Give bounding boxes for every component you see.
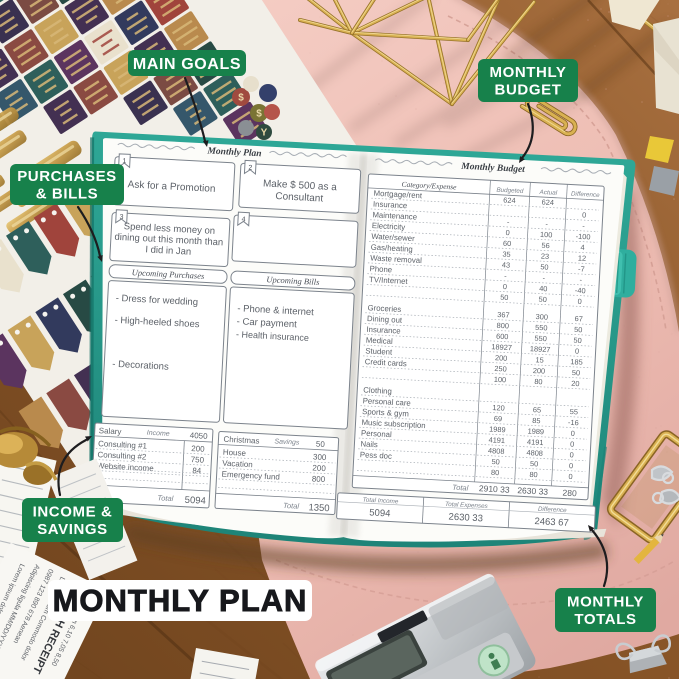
svg-text:200: 200: [533, 366, 546, 376]
svg-text:50: 50: [573, 336, 582, 345]
svg-text:4050: 4050: [190, 431, 209, 441]
svg-text:50: 50: [538, 295, 547, 304]
svg-text:1989: 1989: [489, 424, 506, 434]
svg-text:35: 35: [502, 250, 511, 259]
svg-text:367: 367: [497, 310, 510, 320]
svg-text:Personal: Personal: [361, 429, 392, 440]
svg-text:550: 550: [534, 334, 547, 344]
svg-text:Dining out: Dining out: [367, 314, 403, 325]
svg-text:$: $: [256, 109, 262, 120]
svg-text:250: 250: [494, 364, 507, 374]
svg-text:3: 3: [119, 214, 123, 221]
svg-text:0: 0: [575, 347, 580, 356]
svg-text:Nails: Nails: [360, 439, 378, 449]
svg-text:15: 15: [535, 355, 544, 364]
svg-text:50: 50: [574, 325, 583, 334]
svg-text:50: 50: [530, 459, 539, 468]
svg-text:Budgeted: Budgeted: [496, 187, 524, 195]
svg-text:2630 33: 2630 33: [517, 485, 548, 497]
svg-text:Total: Total: [283, 501, 300, 511]
svg-text:-7: -7: [578, 264, 585, 273]
svg-text:4: 4: [580, 243, 585, 252]
svg-text:280: 280: [562, 487, 577, 498]
svg-text:40: 40: [539, 284, 548, 293]
svg-text:Salary: Salary: [99, 426, 122, 436]
svg-text:624: 624: [503, 195, 516, 205]
svg-text:Electricity: Electricity: [372, 221, 406, 232]
svg-text:PURCHASES: PURCHASES: [17, 168, 117, 185]
svg-text:0: 0: [570, 440, 575, 449]
svg-text:0: 0: [569, 461, 574, 470]
svg-text:BUDGET: BUDGET: [495, 82, 562, 99]
svg-text:600: 600: [496, 332, 509, 342]
svg-text:43: 43: [502, 260, 511, 269]
svg-text:1350: 1350: [308, 502, 330, 514]
svg-text:0: 0: [569, 450, 574, 459]
svg-text:50: 50: [540, 262, 549, 271]
svg-text:300: 300: [535, 312, 548, 322]
svg-text:Phone: Phone: [369, 264, 392, 274]
svg-text:67: 67: [574, 314, 583, 323]
svg-text:0: 0: [570, 429, 575, 438]
svg-text:TOTALS: TOTALS: [574, 611, 636, 628]
svg-text:69: 69: [494, 414, 503, 423]
svg-text:-16: -16: [568, 418, 579, 428]
svg-text:800: 800: [496, 321, 509, 331]
svg-text:20: 20: [571, 379, 580, 388]
svg-text:4: 4: [241, 216, 245, 223]
svg-text:18927: 18927: [491, 342, 512, 352]
svg-text:0: 0: [503, 282, 508, 291]
svg-text:50: 50: [316, 440, 326, 449]
svg-text:MONTHLY PLAN: MONTHLY PLAN: [53, 583, 308, 618]
svg-text:House: House: [223, 448, 247, 458]
svg-text:2: 2: [248, 165, 252, 172]
svg-text:& BILLS: & BILLS: [36, 186, 99, 203]
svg-text:50: 50: [491, 457, 500, 466]
svg-text:12: 12: [578, 253, 587, 262]
svg-text:185: 185: [570, 357, 583, 367]
svg-text:MONTHLY: MONTHLY: [567, 594, 644, 611]
svg-text:Pess doc: Pess doc: [360, 450, 393, 461]
svg-text:85: 85: [532, 416, 541, 425]
svg-text:1989: 1989: [527, 426, 544, 436]
svg-text:Groceries: Groceries: [367, 303, 401, 314]
svg-text:Student: Student: [365, 346, 393, 356]
svg-text:4808: 4808: [526, 448, 543, 458]
svg-text:Total: Total: [452, 483, 469, 493]
svg-text:Savings: Savings: [274, 438, 300, 446]
svg-text:200: 200: [495, 353, 508, 363]
svg-text:Income: Income: [147, 430, 170, 438]
svg-text:100: 100: [494, 375, 507, 385]
svg-text:0: 0: [505, 228, 510, 237]
svg-text:4191: 4191: [527, 437, 544, 447]
svg-text:750: 750: [190, 455, 204, 465]
svg-text:2463 67: 2463 67: [534, 516, 569, 529]
svg-text:550: 550: [535, 323, 548, 333]
svg-text:60: 60: [503, 239, 512, 248]
svg-text:2910 33: 2910 33: [479, 483, 510, 495]
svg-text:Medical: Medical: [366, 336, 394, 346]
svg-text:Christmas: Christmas: [223, 435, 259, 446]
svg-text:SAVINGS: SAVINGS: [37, 521, 108, 538]
svg-text:-40: -40: [575, 286, 586, 296]
svg-text:300: 300: [313, 452, 327, 462]
svg-text:0: 0: [568, 472, 573, 481]
svg-text:23: 23: [541, 252, 550, 261]
svg-text:2630 33: 2630 33: [448, 512, 483, 525]
svg-text:800: 800: [312, 474, 326, 484]
svg-text:0: 0: [582, 210, 587, 219]
svg-text:80: 80: [529, 470, 538, 479]
svg-text:$: $: [238, 93, 244, 104]
svg-text:Clothing: Clothing: [363, 385, 392, 395]
svg-text:50: 50: [500, 293, 509, 302]
svg-text:50: 50: [572, 368, 581, 377]
svg-text:100: 100: [540, 230, 553, 240]
svg-text:5094: 5094: [184, 495, 206, 507]
svg-text:84: 84: [192, 466, 202, 475]
svg-text:4808: 4808: [488, 446, 505, 456]
svg-text:0: 0: [577, 297, 582, 306]
svg-text:55: 55: [570, 407, 579, 416]
svg-text:Vacation: Vacation: [222, 459, 253, 470]
svg-text:Insurance: Insurance: [366, 325, 401, 336]
svg-text:200: 200: [191, 444, 205, 454]
svg-text:80: 80: [491, 468, 500, 477]
svg-text:1: 1: [122, 158, 126, 165]
svg-text:MAIN GOALS: MAIN GOALS: [133, 56, 241, 73]
svg-text:56: 56: [541, 241, 550, 250]
svg-text:Actual: Actual: [538, 189, 557, 197]
svg-text:INCOME &: INCOME &: [33, 504, 113, 521]
svg-text:65: 65: [533, 405, 542, 414]
svg-text:-100: -100: [575, 232, 590, 242]
svg-text:18927: 18927: [530, 344, 551, 354]
svg-text:MONTHLY: MONTHLY: [490, 64, 567, 81]
svg-text:200: 200: [312, 463, 326, 473]
svg-text:Y: Y: [261, 128, 268, 139]
svg-text:Total: Total: [157, 493, 174, 503]
svg-text:4191: 4191: [488, 435, 505, 445]
svg-text:624: 624: [541, 197, 554, 207]
svg-text:80: 80: [534, 377, 543, 386]
svg-text:120: 120: [492, 403, 505, 413]
svg-text:Insurance: Insurance: [373, 199, 408, 210]
svg-text:5094: 5094: [369, 507, 391, 519]
